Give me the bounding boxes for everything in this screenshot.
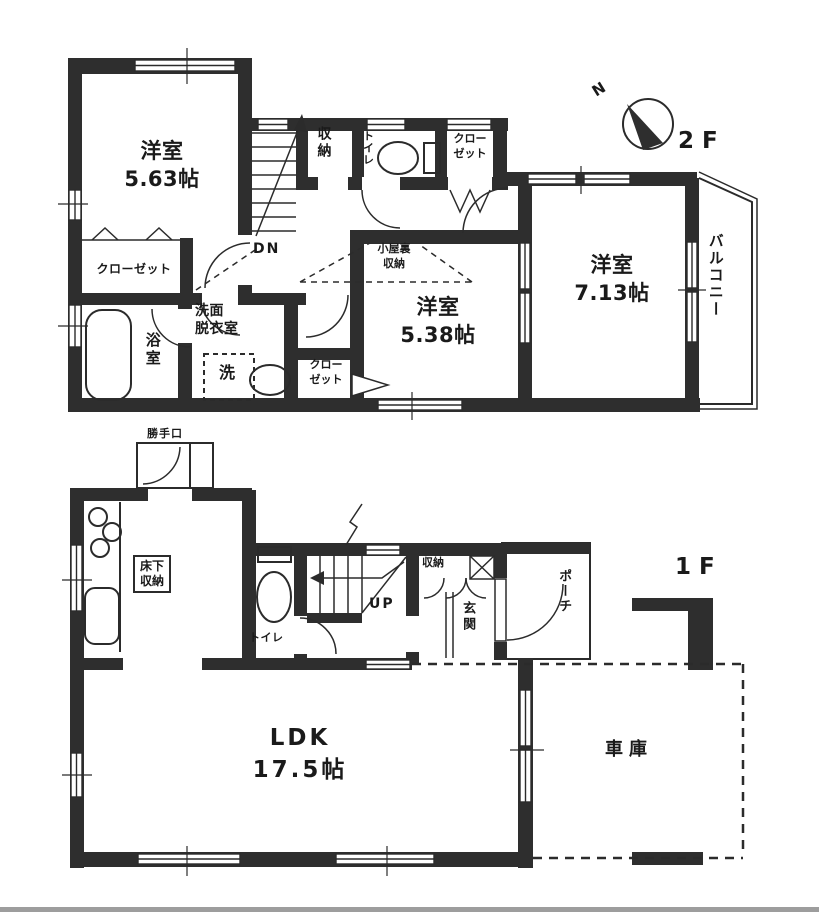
- kitchen-fixtures-1f: [85, 502, 121, 652]
- room-label-toilet-1f: トイレ: [249, 631, 284, 646]
- room-label-closet-left-2f: クローゼット: [86, 262, 182, 278]
- garage-boundary: [412, 664, 743, 858]
- room-label-ldk-1f: LDK 17.5帖: [210, 722, 390, 786]
- stove-burner-icon: [91, 539, 109, 557]
- room-label-bedroom2-2f: 洋室 5.38帖: [358, 294, 518, 349]
- kitchen-sink-icon: [85, 588, 119, 644]
- toilet-bowl-1f-icon: [257, 572, 291, 622]
- attic-dashes-2f: [196, 243, 472, 290]
- floor-label-2f: 2F: [678, 126, 726, 156]
- toilet-bowl-2f-icon: [378, 142, 418, 174]
- room-label-garage-1f: 車庫: [605, 738, 653, 762]
- room-label-porch-1f: ポーチ: [555, 569, 572, 614]
- scan-artifact: [0, 907, 819, 912]
- compass: [623, 99, 673, 150]
- room-label-washroom-2f: 洗面 脱衣室: [195, 302, 275, 339]
- room-label-closet-top-2f: クロー ゼット: [442, 132, 498, 161]
- back-door-1f: [137, 443, 213, 488]
- toilet-1f-fixture: [257, 547, 291, 622]
- walls-2f: [68, 58, 700, 412]
- room-label-balcony-2f: バルコニー: [705, 233, 725, 318]
- room-label-entrance-1f: 玄関: [459, 601, 476, 633]
- label-laundry-2f: 洗: [219, 362, 236, 383]
- label-back-door-1f: 勝手口: [147, 427, 183, 442]
- room-label-storage-1f: 収納: [422, 556, 444, 571]
- floor-plan-page: 洋室 5.63帖 クローゼット 浴室 洗面 脱衣室 洗 DN 収納 トイレ クロ…: [0, 0, 819, 916]
- bathtub-icon: [86, 310, 131, 400]
- room-label-attic-storage-2f: 小屋裏 収納: [366, 242, 422, 271]
- label-stairs-dn-2f: DN: [253, 240, 280, 258]
- room-label-bedroom3-2f: 洋室 7.13帖: [532, 252, 692, 307]
- stove-burner-icon: [89, 508, 107, 526]
- front-door-leaf-icon: [495, 579, 506, 641]
- room-label-closet-mid-2f: クロー ゼット: [302, 358, 350, 387]
- label-stairs-up-1f: UP: [369, 595, 395, 613]
- floor-label-1f: 1F: [675, 552, 723, 582]
- porch-outline: [502, 543, 590, 659]
- room-label-bedroom1-2f: 洋室 5.63帖: [82, 138, 242, 193]
- room-label-toilet-2f: トイレ: [360, 130, 375, 166]
- label-underfloor-storage-1f: 床下 収納: [133, 555, 171, 593]
- stove-burner-icon: [103, 523, 121, 541]
- room-label-bath-2f: 浴室: [142, 332, 162, 368]
- room-label-storage-2f: 収納: [314, 126, 332, 160]
